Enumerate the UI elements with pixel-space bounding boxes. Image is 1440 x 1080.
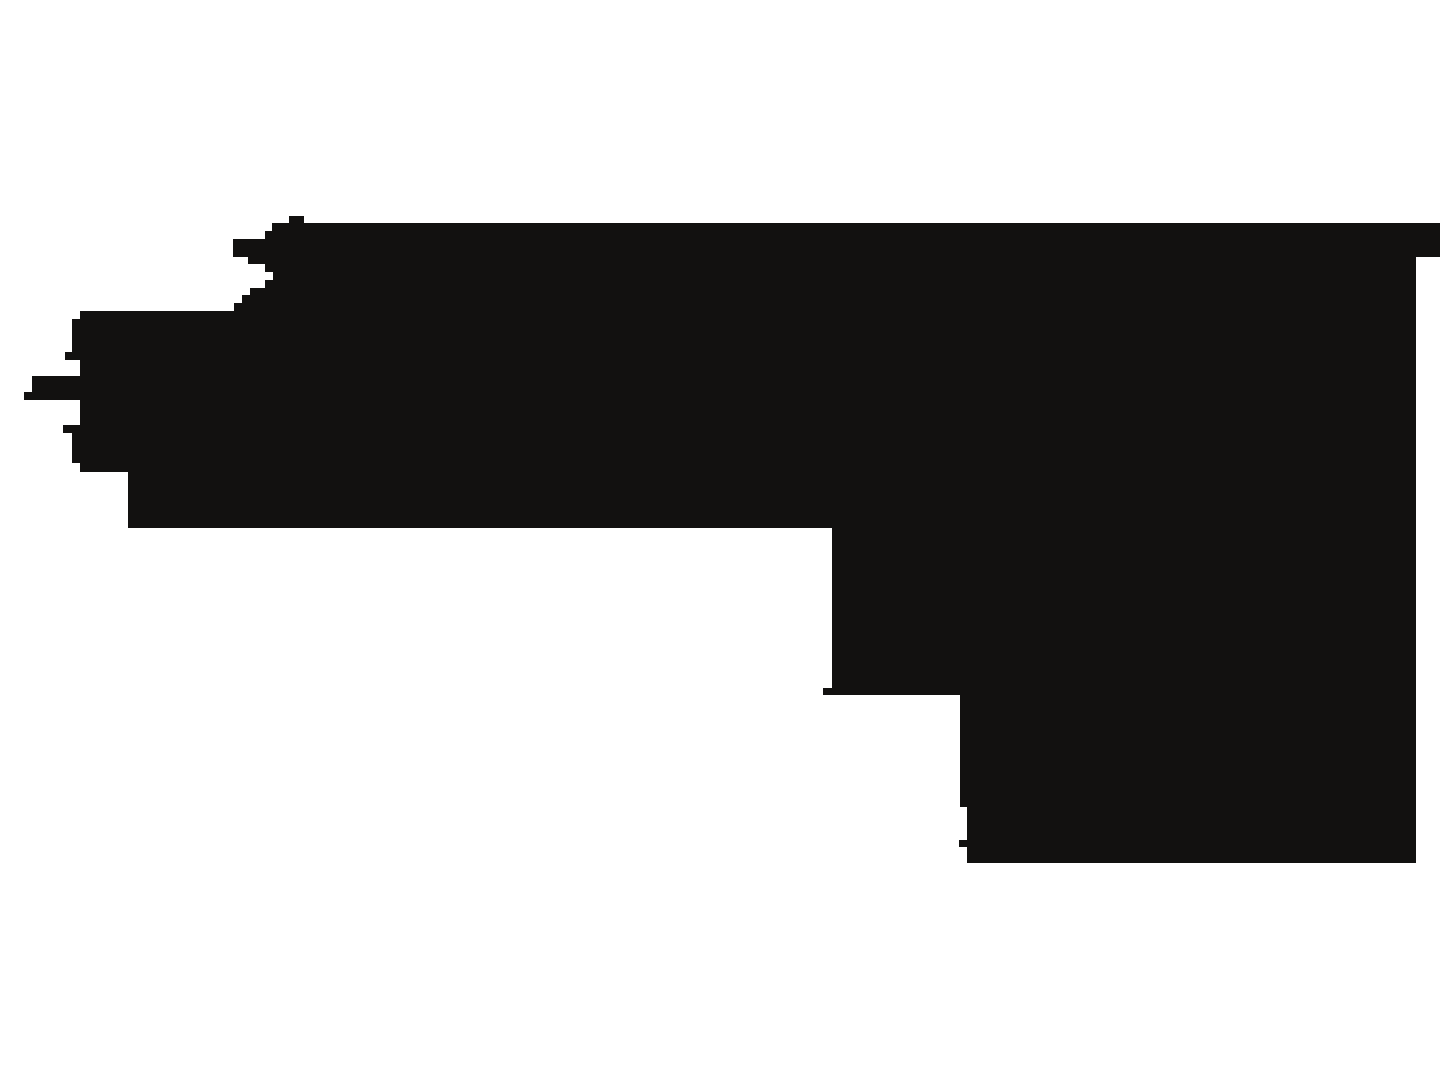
silhouette-svg [0,0,1440,1080]
image-canvas [0,0,1440,1080]
